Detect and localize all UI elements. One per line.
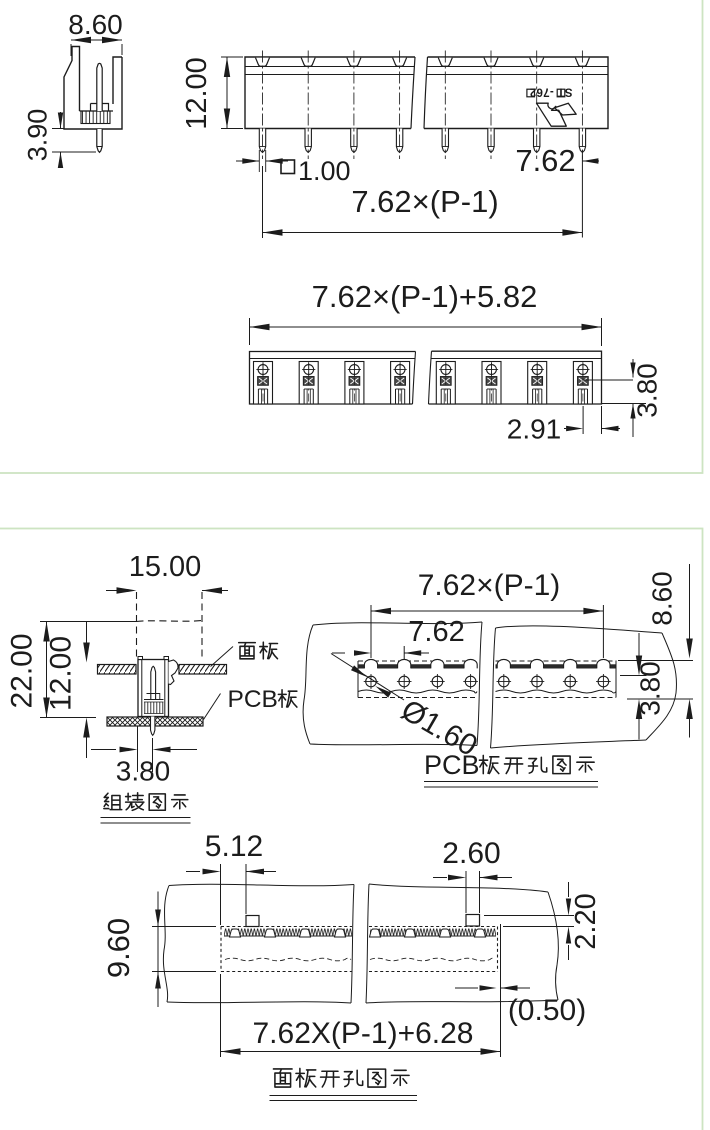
svg-text:3.80: 3.80 — [632, 363, 663, 418]
svg-text:ST -762: ST -762 — [529, 86, 572, 98]
svg-text:PCB: PCB — [424, 750, 480, 780]
svg-text:12.00: 12.00 — [181, 57, 213, 130]
svg-text:9.60: 9.60 — [101, 918, 136, 978]
svg-text:7.62×(P-1)+5.82: 7.62×(P-1)+5.82 — [312, 279, 538, 314]
svg-text:PCB: PCB — [228, 686, 278, 713]
svg-text:7.62X(P-1)+6.28: 7.62X(P-1)+6.28 — [253, 1017, 474, 1050]
svg-text:7.62×(P-1): 7.62×(P-1) — [418, 569, 561, 602]
svg-text:8.60: 8.60 — [647, 571, 678, 626]
svg-text:22.00: 22.00 — [6, 633, 39, 708]
svg-text:2.20: 2.20 — [570, 893, 602, 949]
svg-text:5.12: 5.12 — [205, 830, 263, 863]
svg-text:2.91: 2.91 — [507, 414, 562, 445]
svg-text:3.90: 3.90 — [23, 109, 53, 162]
svg-text:12.00: 12.00 — [45, 636, 78, 711]
svg-text:7.62: 7.62 — [515, 143, 575, 178]
svg-text:7.62: 7.62 — [408, 616, 464, 648]
svg-text:7.62×(P-1): 7.62×(P-1) — [351, 184, 498, 219]
svg-text:8.60: 8.60 — [68, 9, 123, 40]
svg-text:1.00: 1.00 — [298, 156, 351, 186]
svg-text:15.00: 15.00 — [129, 551, 202, 583]
svg-text:2.60: 2.60 — [442, 837, 500, 870]
svg-text:(0.50): (0.50) — [508, 994, 586, 1027]
svg-text:3.80: 3.80 — [116, 756, 171, 787]
